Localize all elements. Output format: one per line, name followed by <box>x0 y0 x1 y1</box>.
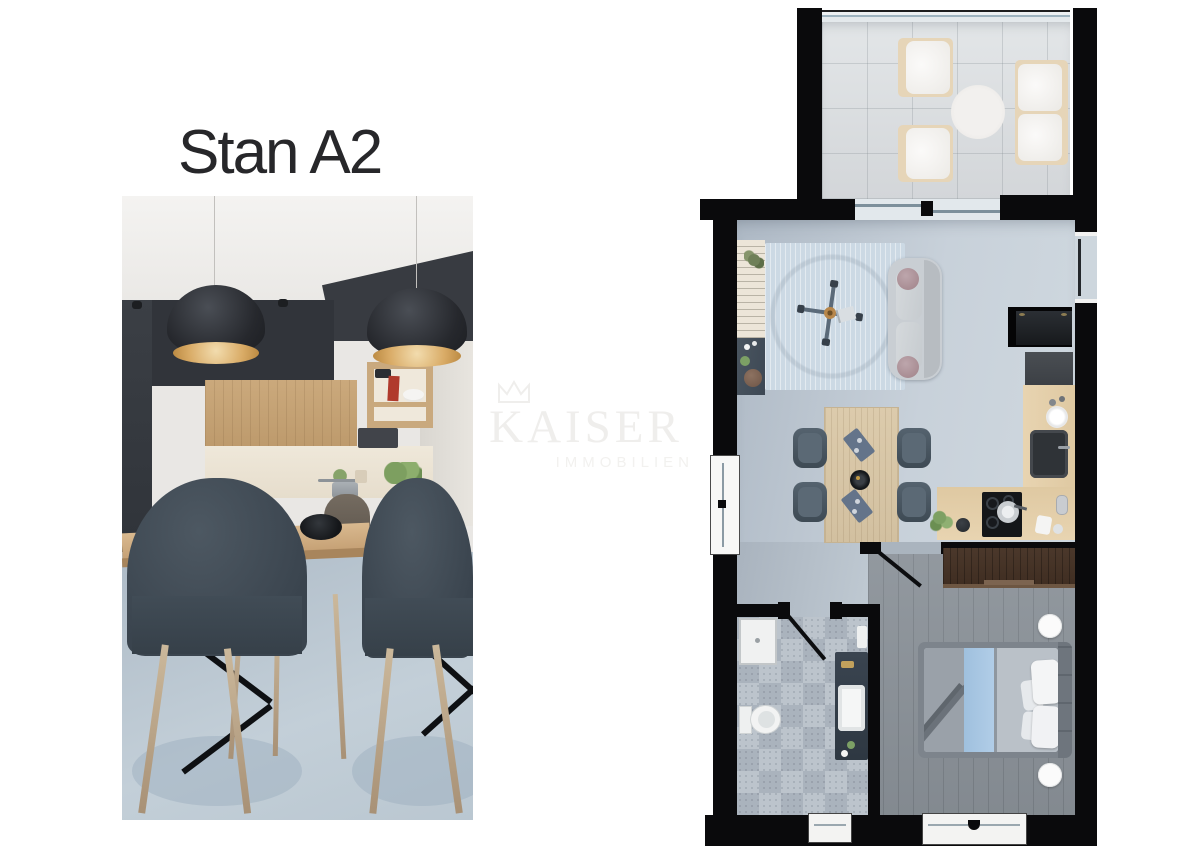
grater <box>1056 495 1068 515</box>
wall-bottom <box>705 815 1097 846</box>
side-stool <box>744 369 762 387</box>
black-bowl <box>300 514 342 540</box>
watermark-brand-text: KAISER <box>468 400 704 454</box>
decor-cups <box>752 341 757 346</box>
real-estate-listing-image: { "page": { "background": "#ffffff" }, "… <box>0 0 1200 856</box>
chair-seat <box>902 433 926 463</box>
kitchen-plant <box>930 508 954 532</box>
ceiling-spotlight <box>278 299 288 307</box>
wardrobe-handle-notch <box>984 580 1034 585</box>
kitchen-sink <box>1030 430 1068 478</box>
terrace-window-band <box>822 10 1070 22</box>
fruit <box>856 476 860 480</box>
bathroom-window-glass <box>814 824 846 826</box>
floor-plan <box>700 8 1100 848</box>
left-window-latch <box>718 500 726 508</box>
pendant-cord <box>214 196 215 288</box>
pendant-lamp-glow <box>173 342 259 364</box>
fan-hub <box>823 306 837 320</box>
wall-right <box>1075 220 1097 845</box>
foreground-chair-right-seat <box>365 598 473 656</box>
closet-light <box>1061 313 1067 316</box>
wall-terrace-left <box>797 8 822 220</box>
wall-living-top-right <box>1000 195 1097 220</box>
vanity-faucet <box>841 661 854 668</box>
bed-runner-blue <box>964 648 994 752</box>
entry-closet-panel <box>1016 311 1072 345</box>
cutting-board <box>1035 515 1053 535</box>
red-book <box>387 376 399 402</box>
spice-bottles <box>355 470 367 483</box>
bed-pillow <box>1031 705 1058 748</box>
ceiling-spotlight <box>132 301 142 309</box>
brand-watermark: KAISER IMMOBILIEN <box>468 380 704 484</box>
kitchen-tall-unit <box>1025 352 1073 385</box>
living-sofa-back <box>924 260 940 378</box>
bed-pillow <box>1030 659 1058 705</box>
closet-light <box>1019 313 1025 316</box>
bed-mattress <box>924 648 1058 752</box>
sofa-round-pillow <box>897 268 919 290</box>
wall-bathroom-bedroom <box>868 604 880 815</box>
foreground-chair-left-seat <box>132 596 302 654</box>
terrace-armchair-cushion <box>906 128 950 179</box>
chair-seat <box>798 433 822 463</box>
terrace-armchair-cushion <box>906 41 950 94</box>
decor-cups <box>744 344 750 350</box>
cooktop-burner <box>986 516 999 529</box>
bedroom-window-glass <box>928 824 968 826</box>
sliding-door-post <box>921 201 933 216</box>
shower-drain <box>755 638 760 643</box>
center-bowl <box>850 470 870 490</box>
bathroom-window <box>808 813 852 843</box>
chair-seat <box>902 487 926 517</box>
wall-terrace-right <box>1073 8 1097 220</box>
pendant-cord <box>416 196 417 290</box>
entrance-door-leaf <box>1078 239 1081 296</box>
dining-chair <box>897 428 931 468</box>
placemat-dot <box>857 438 862 443</box>
mortar-pot <box>956 518 970 532</box>
fan-blade-cap <box>830 280 839 288</box>
entrance-door-frame <box>1075 299 1097 303</box>
fan-blade-cap <box>855 313 863 322</box>
sofa-round-pillow <box>897 356 919 378</box>
vanity-decor <box>841 750 848 757</box>
bath-shelf-items <box>857 626 867 648</box>
interior-photo <box>122 196 473 820</box>
white-bowl <box>403 389 424 400</box>
vanity-decor <box>847 741 855 749</box>
bed-headboard <box>1058 642 1072 758</box>
watermark-tagline-text: IMMOBILIEN <box>556 454 694 471</box>
spice-jar <box>1049 399 1056 406</box>
page-title: Stan A2 <box>178 122 381 184</box>
potted-plant <box>744 250 764 270</box>
dining-chair <box>793 482 827 522</box>
vanity-sink <box>838 685 865 731</box>
small-bowl <box>1053 524 1063 534</box>
bedroom-window-glass <box>980 824 1020 826</box>
extractor-hood <box>358 428 398 448</box>
chair-seat <box>798 487 822 517</box>
ceiling-fan <box>793 276 868 351</box>
decor-plant-small <box>740 356 750 366</box>
terrace-sofa-cushion <box>1018 64 1062 111</box>
sliding-door-glass <box>924 210 1000 213</box>
dining-chair <box>793 428 827 468</box>
pendant-lamp-glow <box>373 345 461 367</box>
nightstand <box>1038 763 1062 787</box>
spice-jar <box>1059 396 1065 402</box>
entrance-door-frame <box>1075 232 1097 236</box>
dining-chair <box>897 482 931 522</box>
toilet-bowl-inner <box>758 711 775 728</box>
fan-blade-cap <box>821 338 830 346</box>
placemat-dot <box>854 448 859 453</box>
white-plate <box>1046 406 1068 428</box>
photo-shelf-board <box>374 402 426 407</box>
fan-blade-cap <box>797 304 805 313</box>
bedroom-door-opening <box>881 542 941 554</box>
photo-wood-cabinets <box>205 380 357 448</box>
placemat-dot <box>855 499 860 504</box>
sink-faucet <box>1058 446 1070 449</box>
bathroom-door-post <box>830 602 842 619</box>
terrace-sofa-cushion <box>1018 114 1062 161</box>
nightstand <box>1038 614 1062 638</box>
terrace-round-rug <box>951 85 1005 139</box>
placemat-dot <box>852 509 857 514</box>
